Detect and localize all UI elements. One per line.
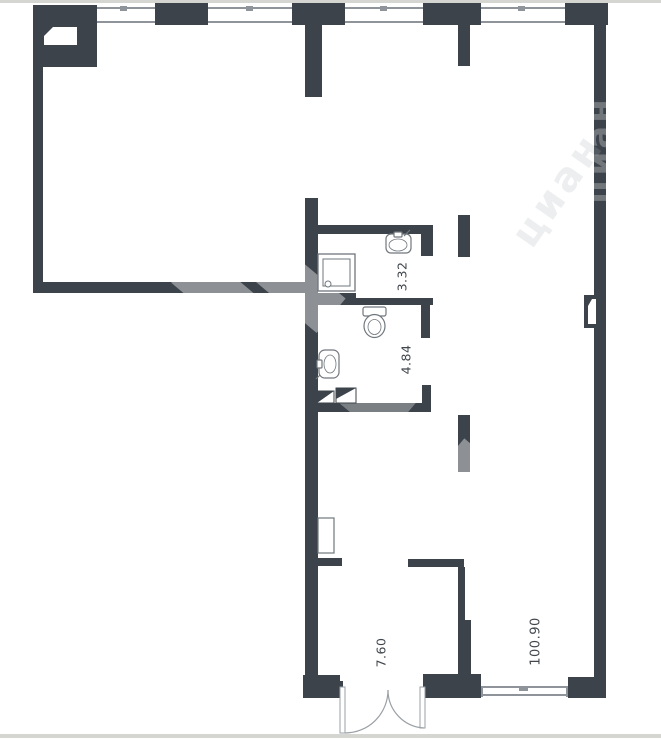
entrance-door (340, 687, 425, 733)
area-label-bathroom-large: 4.84 (399, 330, 414, 390)
area-label-bathroom-small: 3.32 (395, 247, 410, 307)
toilet-icon (363, 307, 386, 338)
duct-icon (317, 388, 356, 403)
wall-niche-icon (584, 295, 600, 328)
shower-icon (318, 254, 355, 291)
floor-plan: 3.32 4.84 7.60 100.90 циан циан (0, 0, 661, 739)
fixtures-layer (0, 0, 661, 739)
vent-shaft-icon (44, 27, 77, 45)
radiator-icon (318, 518, 334, 553)
area-label-vestibule: 7.60 (374, 623, 389, 683)
sink-icon (316, 350, 339, 379)
area-label-main-hall: 100.90 (529, 612, 544, 672)
